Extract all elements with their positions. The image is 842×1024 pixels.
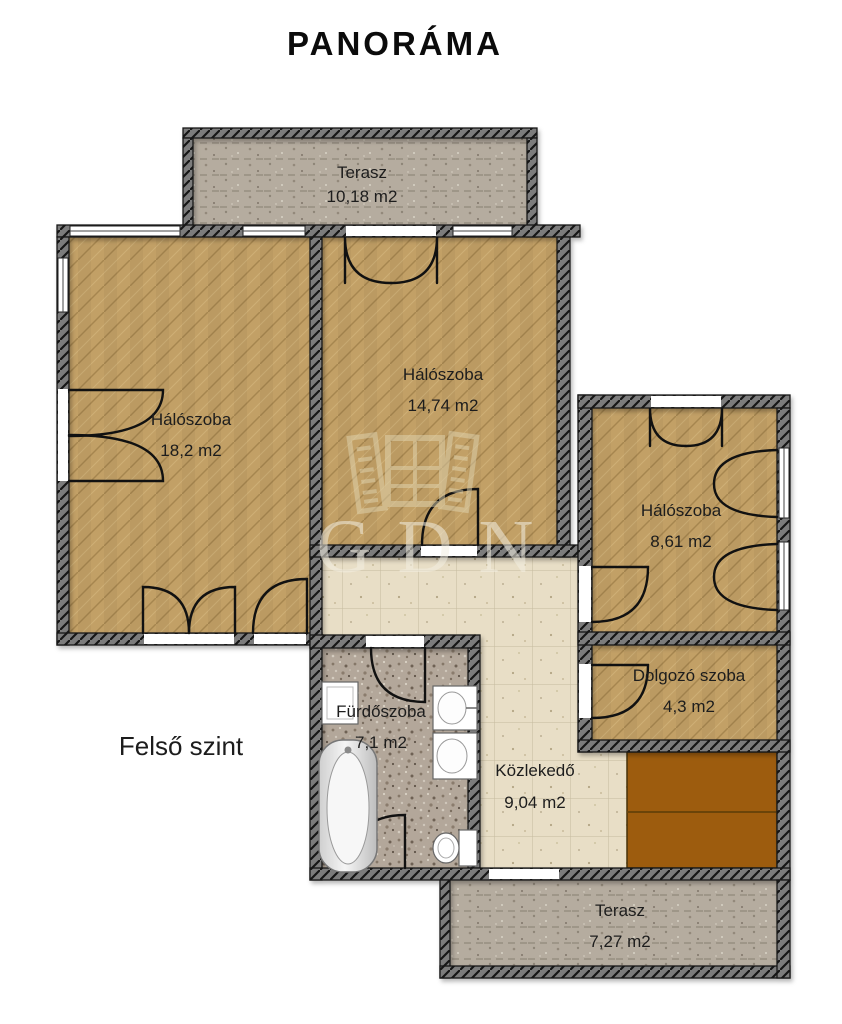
washbasin <box>433 733 477 779</box>
room-label: Terasz <box>337 163 387 182</box>
room-floor-dolgozo-szoba <box>592 645 777 740</box>
bathtub <box>319 740 377 872</box>
room-label: Hálószoba <box>151 410 232 429</box>
built-in-wardrobe <box>627 752 777 868</box>
washbasin <box>433 686 477 730</box>
floor-plan-canvas: PANORÁMA Felső szint <box>0 0 842 1024</box>
room-label: Hálószoba <box>641 501 722 520</box>
room-area: 18,2 m2 <box>160 441 221 460</box>
floor-level-label: Felső szint <box>119 731 244 761</box>
window <box>779 448 789 518</box>
room-floor-haloszoba-small <box>592 408 777 632</box>
room-area: 14,74 m2 <box>408 396 479 415</box>
watermark-text: GDN <box>317 505 560 589</box>
room-area: 10,18 m2 <box>327 187 398 206</box>
bathtub-faucet <box>345 747 352 754</box>
window <box>70 226 180 236</box>
room-label: Dolgozó szoba <box>633 666 746 685</box>
room-area: 7,27 m2 <box>589 932 650 951</box>
room-label: Közlekedő <box>495 761 574 780</box>
floor-plan-page: PANORÁMA Felső szint <box>0 0 842 1024</box>
room-label: Terasz <box>595 901 645 920</box>
page-title: PANORÁMA <box>287 25 503 62</box>
room-area: 9,04 m2 <box>504 793 565 812</box>
window <box>779 542 789 610</box>
window <box>243 226 305 236</box>
room-area: 7,1 m2 <box>355 733 407 752</box>
room-label: Hálószoba <box>403 365 484 384</box>
room-area: 8,61 m2 <box>650 532 711 551</box>
window <box>58 258 68 312</box>
room-area: 4,3 m2 <box>663 697 715 716</box>
room-label: Fürdőszoba <box>336 702 426 721</box>
room-floor-terasz-bottom <box>450 880 780 966</box>
window <box>453 226 512 236</box>
